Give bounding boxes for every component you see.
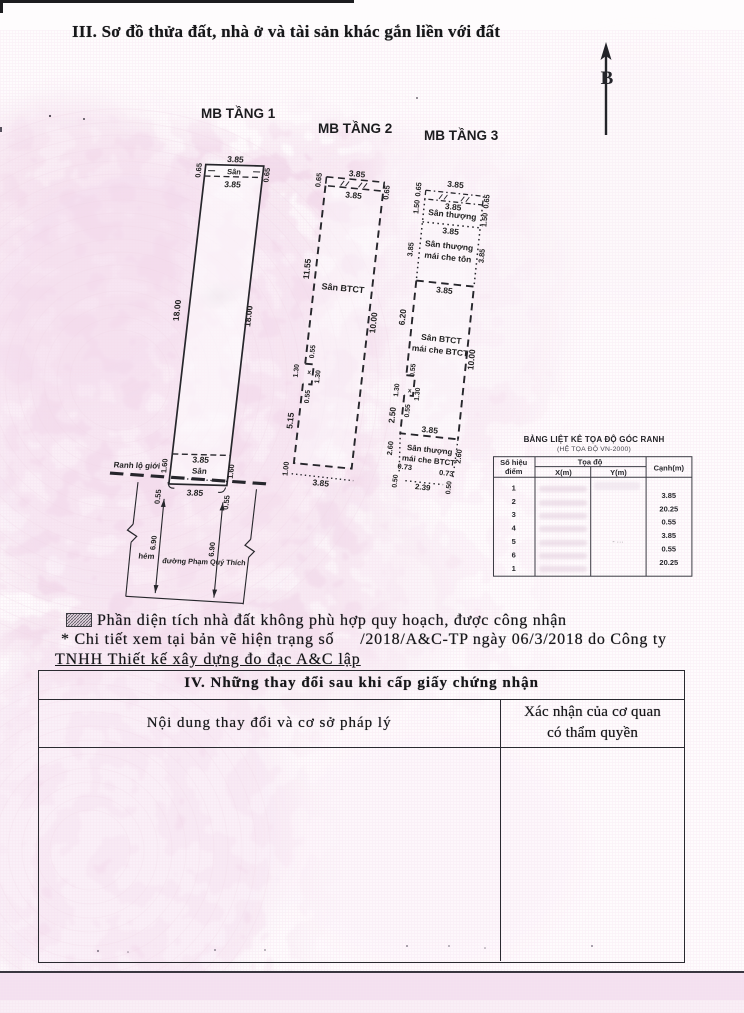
svg-text:3.85: 3.85	[348, 168, 366, 179]
svg-text:2.50: 2.50	[386, 406, 398, 423]
svg-text:20.25: 20.25	[659, 505, 678, 514]
svg-text:3.85: 3.85	[405, 242, 416, 257]
svg-text:10.00: 10.00	[367, 312, 379, 334]
svg-text:3.85: 3.85	[192, 454, 210, 464]
svg-text:1.30: 1.30	[414, 387, 422, 401]
svg-text:Cạnh(m): Cạnh(m)	[654, 464, 685, 473]
svg-text:0.55: 0.55	[661, 518, 676, 527]
svg-text:1.30: 1.30	[393, 383, 401, 397]
svg-text:3.85: 3.85	[186, 487, 204, 497]
svg-text:11.55: 11.55	[301, 258, 313, 280]
svg-text:1: 1	[512, 484, 516, 493]
svg-text:3.85: 3.85	[476, 248, 487, 263]
svg-text:3.85: 3.85	[227, 154, 245, 164]
svg-text:0.65: 0.65	[413, 182, 424, 197]
svg-text:3.85: 3.85	[447, 179, 465, 191]
svg-text:0.50: 0.50	[445, 481, 453, 495]
svg-text:2.39: 2.39	[415, 482, 432, 493]
svg-text:6: 6	[512, 551, 516, 560]
svg-text:3.85: 3.85	[421, 424, 439, 436]
svg-text:0.55: 0.55	[153, 489, 164, 504]
svg-text:điểm: điểm	[505, 467, 523, 476]
svg-text:0.55: 0.55	[409, 363, 417, 377]
svg-text:0.65: 0.65	[481, 194, 492, 209]
svg-text:Ranh lộ giới: Ranh lộ giới	[113, 460, 161, 470]
svg-text:4: 4	[512, 524, 517, 533]
svg-text:0.65: 0.65	[313, 172, 324, 187]
svg-text:3.85: 3.85	[312, 477, 330, 488]
svg-text:1.50: 1.50	[479, 212, 490, 227]
svg-text:0.73: 0.73	[397, 462, 412, 472]
svg-text:3.85: 3.85	[661, 531, 676, 540]
svg-text:0.55: 0.55	[661, 545, 676, 554]
svg-text:2: 2	[512, 497, 516, 506]
svg-text:18.00: 18.00	[171, 299, 183, 321]
svg-text:5.15: 5.15	[284, 412, 296, 429]
svg-text:6.90: 6.90	[148, 535, 159, 550]
svg-text:2.60: 2.60	[453, 449, 464, 464]
svg-text:3.85: 3.85	[436, 284, 454, 296]
svg-text:2.60: 2.60	[385, 441, 396, 456]
svg-text:3: 3	[512, 510, 516, 519]
svg-text:- ···: - ···	[612, 539, 623, 546]
svg-text:18.00: 18.00	[242, 305, 254, 327]
svg-text:20.25: 20.25	[659, 558, 678, 567]
svg-text:Tọa độ: Tọa độ	[578, 458, 603, 467]
svg-text:3.85: 3.85	[661, 491, 676, 500]
svg-text:Sân: Sân	[227, 167, 242, 176]
svg-text:Sân: Sân	[192, 467, 208, 476]
svg-text:Số hiệu: Số hiệu	[500, 458, 528, 467]
svg-text:1.60: 1.60	[159, 458, 170, 473]
svg-text:Y(m): Y(m)	[610, 468, 627, 477]
svg-text:0.55: 0.55	[404, 404, 412, 418]
svg-text:đường Phạm Quý Thích: đường Phạm Quý Thích	[162, 556, 247, 567]
svg-text:6.90: 6.90	[207, 542, 218, 557]
svg-text:1.00: 1.00	[280, 461, 291, 476]
svg-text:hẻm: hẻm	[138, 551, 155, 560]
svg-text:0.65: 0.65	[193, 163, 204, 178]
svg-text:3.85: 3.85	[442, 225, 460, 237]
svg-text:0.65: 0.65	[261, 168, 272, 183]
svg-text:6.20: 6.20	[396, 308, 408, 325]
svg-text:5: 5	[512, 537, 516, 546]
svg-text:1.50: 1.50	[411, 199, 422, 214]
svg-text:0.73: 0.73	[439, 468, 454, 478]
svg-text:1: 1	[512, 564, 516, 573]
svg-text:X(m): X(m)	[555, 468, 572, 477]
svg-text:1.30: 1.30	[293, 364, 302, 378]
svg-text:10.00: 10.00	[465, 349, 477, 371]
svg-text:0.50: 0.50	[391, 474, 399, 488]
svg-text:3.85: 3.85	[224, 179, 242, 189]
svg-text:1.60: 1.60	[226, 464, 237, 479]
svg-text:B: B	[601, 68, 614, 89]
svg-text:3.85: 3.85	[345, 189, 363, 200]
